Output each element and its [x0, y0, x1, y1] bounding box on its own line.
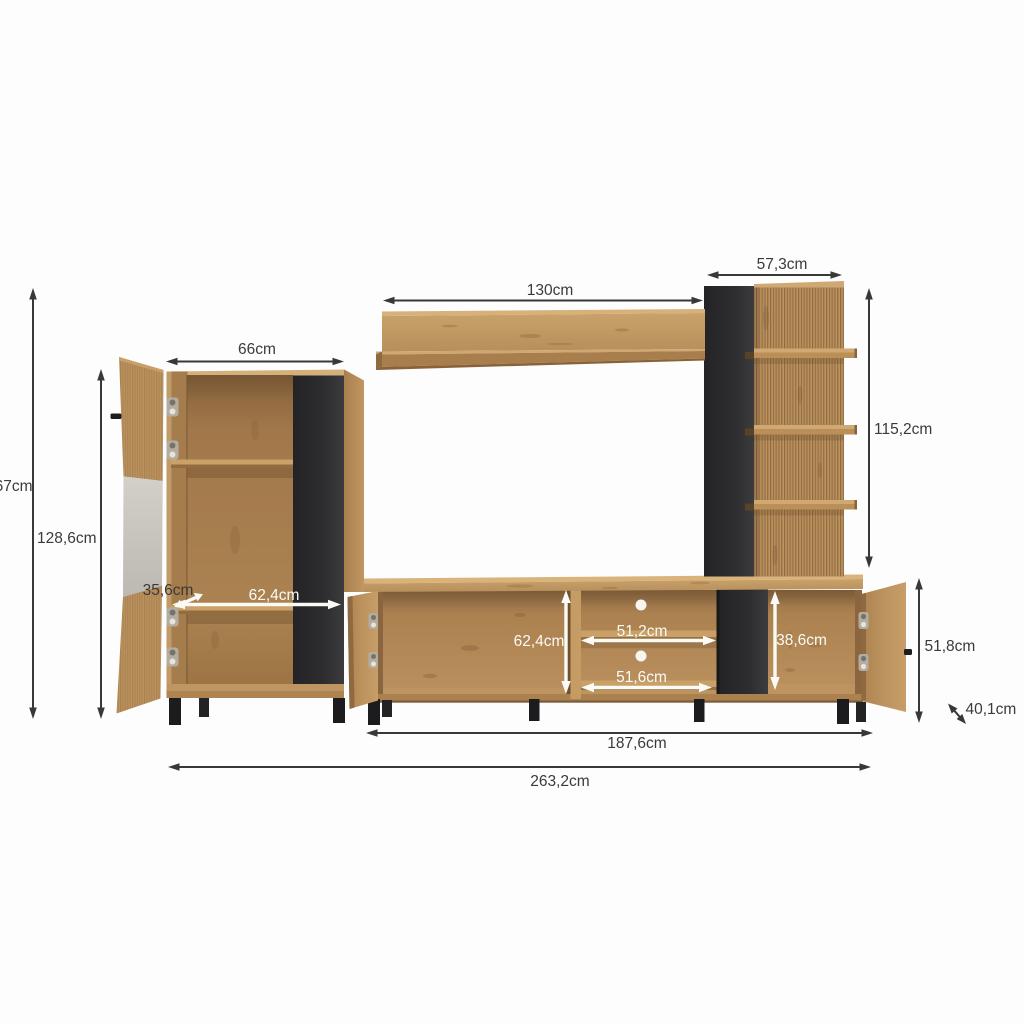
svg-text:51,8cm: 51,8cm [925, 638, 976, 655]
svg-text:51,2cm: 51,2cm [617, 623, 668, 640]
svg-text:35,6cm: 35,6cm [143, 582, 194, 599]
svg-text:40,1cm: 40,1cm [966, 701, 1017, 718]
svg-text:130cm: 130cm [527, 282, 574, 299]
svg-text:187,6cm: 187,6cm [607, 735, 666, 752]
svg-text:167cm: 167cm [0, 478, 33, 495]
svg-text:62,4cm: 62,4cm [249, 587, 300, 604]
svg-text:38,6cm: 38,6cm [776, 632, 827, 649]
svg-text:51,6cm: 51,6cm [616, 669, 667, 686]
svg-text:57,3cm: 57,3cm [757, 256, 808, 273]
svg-text:115,2cm: 115,2cm [874, 421, 932, 438]
svg-text:66cm: 66cm [238, 341, 276, 358]
svg-text:128,6cm: 128,6cm [37, 530, 96, 547]
svg-text:62,4cm: 62,4cm [514, 633, 565, 650]
svg-text:263,2cm: 263,2cm [530, 773, 589, 790]
